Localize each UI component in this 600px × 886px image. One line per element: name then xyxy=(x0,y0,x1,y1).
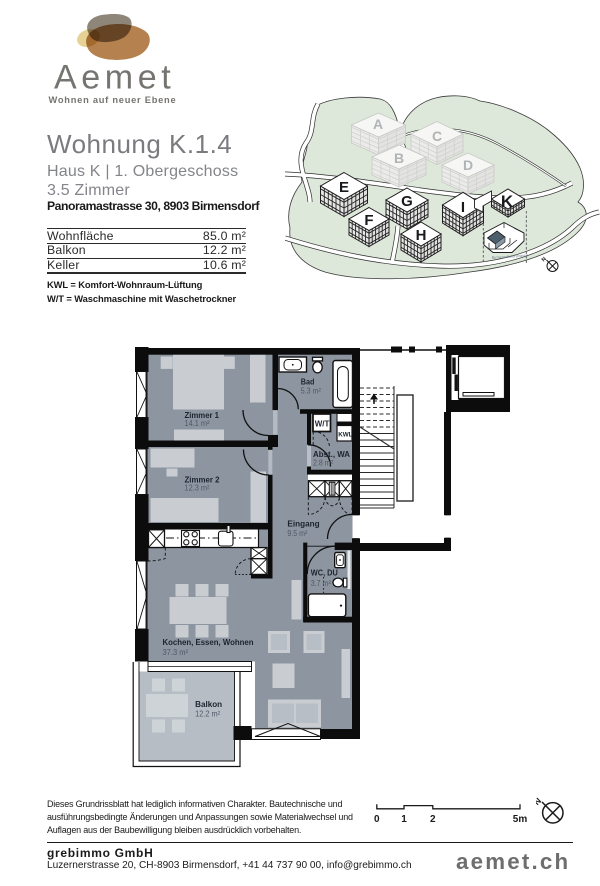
svg-text:A: A xyxy=(373,116,383,132)
svg-text:Kochen, Essen, Wohnen: Kochen, Essen, Wohnen xyxy=(163,638,254,647)
svg-text:12.3 m²: 12.3 m² xyxy=(185,484,210,493)
svg-text:Bad: Bad xyxy=(301,378,315,387)
svg-text:E: E xyxy=(339,179,349,196)
svg-text:F: F xyxy=(364,212,373,229)
svg-text:WC, DU: WC, DU xyxy=(311,568,338,577)
svg-text:G: G xyxy=(401,193,413,210)
svg-text:0: 0 xyxy=(374,814,380,825)
svg-text:C: C xyxy=(432,128,442,144)
svg-text:Aemet: Aemet xyxy=(54,59,175,97)
svg-text:1: 1 xyxy=(401,814,407,825)
svg-text:N: N xyxy=(536,796,543,807)
svg-text:2.8 m²: 2.8 m² xyxy=(313,459,333,468)
svg-text:9.5 m²: 9.5 m² xyxy=(287,529,307,538)
svg-text:I: I xyxy=(461,199,465,216)
svg-text:Balkon: Balkon xyxy=(195,700,222,709)
svg-text:W/T: W/T xyxy=(315,420,330,429)
svg-text:B: B xyxy=(394,150,404,166)
svg-text:KWL: KWL xyxy=(338,432,352,439)
svg-text:3.7 m²: 3.7 m² xyxy=(311,579,331,588)
svg-text:K: K xyxy=(501,192,514,211)
svg-text:D: D xyxy=(463,157,473,173)
svg-text:5m: 5m xyxy=(513,814,528,825)
svg-text:2: 2 xyxy=(430,814,436,825)
svg-text:H: H xyxy=(416,227,427,244)
svg-text:Eingang: Eingang xyxy=(287,520,319,529)
svg-text:37.3 m²: 37.3 m² xyxy=(163,648,189,657)
svg-text:14.1 m²: 14.1 m² xyxy=(185,419,210,428)
svg-text:N: N xyxy=(541,256,548,263)
svg-text:5.3 m²: 5.3 m² xyxy=(301,387,321,396)
svg-text:12.2 m²: 12.2 m² xyxy=(195,710,220,719)
svg-text:Wohnen auf neuer Ebene: Wohnen auf neuer Ebene xyxy=(49,95,177,105)
